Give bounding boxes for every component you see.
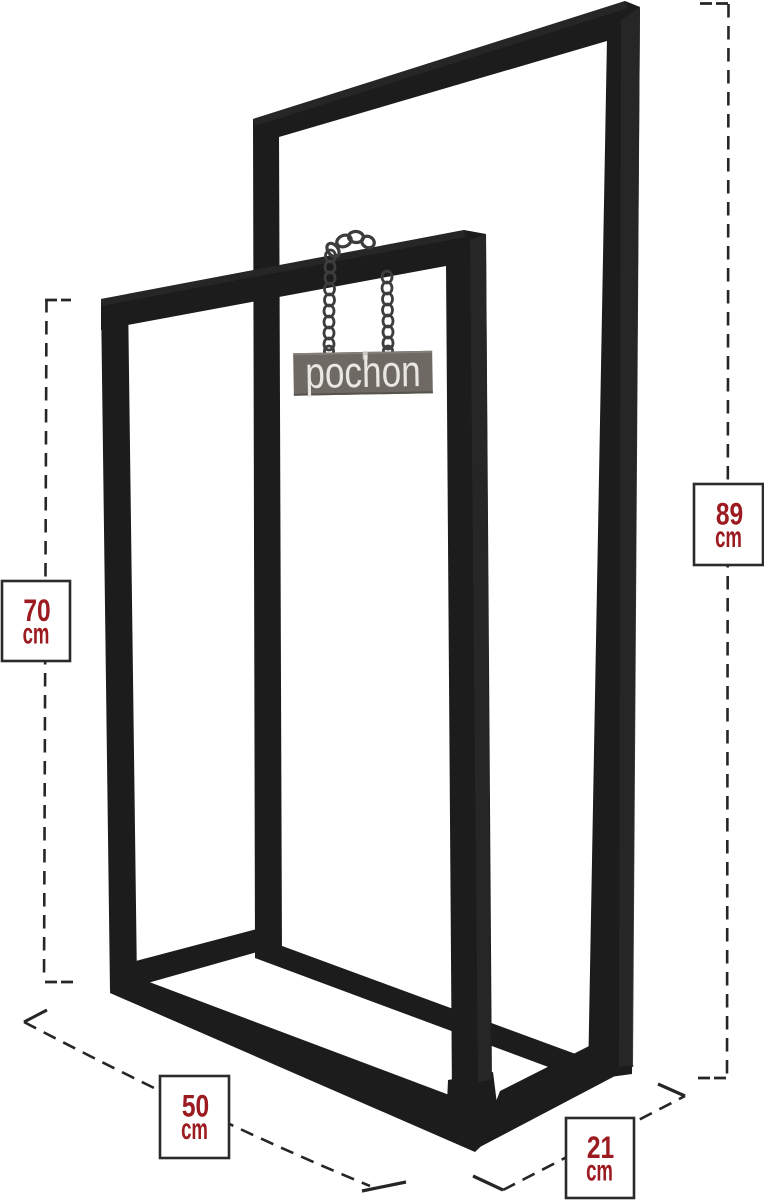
svg-text:pochon: pochon [305, 347, 421, 398]
svg-text:cm: cm [715, 521, 742, 555]
svg-text:cm: cm [586, 1154, 613, 1188]
svg-text:cm: cm [181, 1113, 208, 1147]
svg-text:cm: cm [23, 617, 50, 651]
